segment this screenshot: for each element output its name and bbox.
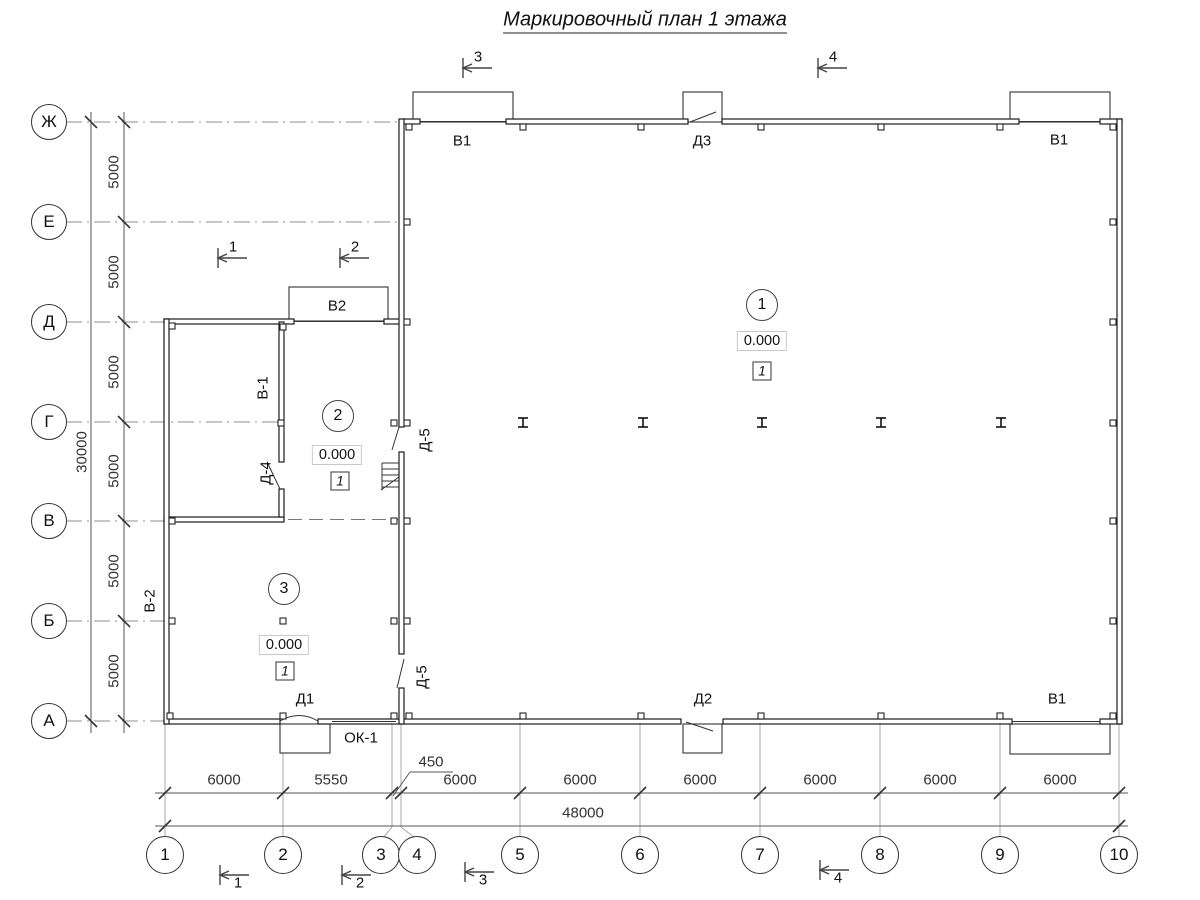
dim-text-bottom: 6000 — [443, 772, 476, 789]
wall — [164, 517, 284, 522]
canopy-outline — [413, 92, 513, 122]
gate-label-v1-bottom: В1 — [1048, 691, 1066, 708]
dim-text-bottom: 5550 — [314, 772, 347, 789]
axis-row-circle: Ж — [31, 104, 67, 140]
door-label-d2-bottom: Д2 — [694, 691, 713, 708]
wall — [279, 489, 284, 517]
wall — [399, 119, 404, 427]
column-mark — [278, 420, 284, 426]
section-mark-label: 4 — [834, 870, 842, 887]
column-mark — [280, 618, 286, 624]
column-mark — [1110, 713, 1116, 719]
column-mark — [638, 124, 644, 130]
room-number-circle: 3 — [268, 573, 300, 605]
section-mark-label: 3 — [479, 872, 487, 889]
column-mark — [997, 713, 1003, 719]
room-elevation: 0.000 — [312, 445, 362, 465]
section-mark-label: 1 — [229, 239, 237, 256]
column-mark — [404, 319, 410, 325]
section-mark-label: 2 — [356, 875, 364, 892]
column-mark — [520, 713, 526, 719]
column-mark — [169, 618, 175, 624]
gate-label-v2-wall: В-2 — [142, 589, 159, 612]
axis-col-circle: 3 — [362, 836, 400, 874]
column-mark — [391, 420, 397, 426]
axis-col-circle: 1 — [146, 836, 184, 874]
axis-row-circle: Б — [31, 603, 67, 639]
drawing-title: Маркировочный план 1 этажа — [503, 9, 787, 34]
porch-outline — [1010, 724, 1110, 754]
axis-col-circle: 7 — [741, 836, 779, 874]
axis-row-circle: В — [31, 503, 67, 539]
column-mark — [520, 124, 526, 130]
wall — [723, 719, 1012, 724]
section-mark-label: 1 — [234, 875, 242, 892]
room-number-circle: 1 — [746, 289, 778, 321]
column-mark — [406, 713, 412, 719]
axis-row-circle: Д — [31, 304, 67, 340]
wall — [722, 119, 1019, 124]
porch-outline — [683, 724, 722, 753]
column-mark — [280, 324, 286, 330]
dim-text-bottom: 6000 — [803, 772, 836, 789]
dim-text-left: 5000 — [106, 155, 123, 188]
door-label-d5-upper: Д-5 — [417, 428, 434, 452]
column-mark — [404, 518, 410, 524]
dim-text-left-total: 30000 — [74, 431, 91, 473]
dim-text-left: 5000 — [106, 454, 123, 487]
porch-outline — [280, 724, 330, 753]
wall — [399, 688, 404, 724]
plan-linework — [0, 0, 1200, 900]
floor-plan: Маркировочный план 1 этажа В1 Д3 В1 В2 В… — [0, 0, 1200, 900]
gate-label-v1-wall: В-1 — [255, 376, 272, 399]
wall — [164, 719, 280, 724]
door-label-d4: Д-4 — [258, 461, 275, 485]
column-mark — [997, 124, 1003, 130]
door-label-d1: Д1 — [296, 691, 315, 708]
column-mark — [1110, 518, 1116, 524]
axis-col-circle: 5 — [501, 836, 539, 874]
gate-label-v2-canopy: В2 — [328, 298, 346, 315]
dim-text-bottom: 6000 — [923, 772, 956, 789]
column-mark — [404, 219, 410, 225]
axis-col-circle: 4 — [398, 836, 436, 874]
column-mark — [1110, 618, 1116, 624]
stair-cut-line — [381, 477, 399, 490]
section-mark-label: 3 — [474, 49, 482, 66]
dim-text-left: 5000 — [106, 255, 123, 288]
window-label-ok1: ОК-1 — [344, 730, 378, 747]
column-mark — [1110, 319, 1116, 325]
section-mark-label: 2 — [351, 239, 359, 256]
column-mark — [638, 713, 644, 719]
dim-text-left: 5000 — [106, 654, 123, 687]
column-mark — [391, 713, 397, 719]
wall — [399, 452, 404, 654]
column-mark — [758, 124, 764, 130]
axis-col-circle: 10 — [1100, 836, 1138, 874]
wall — [402, 119, 420, 124]
column-mark — [758, 713, 764, 719]
gate-label-v1-top-right: В1 — [1050, 132, 1068, 149]
column-mark — [1110, 124, 1116, 130]
column-mark — [404, 420, 410, 426]
wall — [279, 322, 284, 462]
column-mark — [878, 124, 884, 130]
axis-col-circle: 6 — [621, 836, 659, 874]
column-mark — [391, 618, 397, 624]
dim-text-left: 5000 — [106, 554, 123, 587]
dim-text-offset: 450 — [418, 754, 443, 771]
column-mark — [169, 518, 175, 524]
column-mark — [404, 618, 410, 624]
section-mark-label: 4 — [829, 49, 837, 66]
door-label-d5-lower: Д-5 — [414, 665, 431, 689]
column-mark — [1110, 420, 1116, 426]
dim-text-bottom: 6000 — [683, 772, 716, 789]
wall — [164, 319, 169, 724]
column-mark — [280, 713, 286, 719]
column-mark — [406, 124, 412, 130]
room-elevation: 0.000 — [259, 635, 309, 655]
gate-label-v1-top-left: В1 — [453, 133, 471, 150]
axis-row-circle: А — [31, 703, 67, 739]
floor-type-mark: 1 — [331, 472, 350, 491]
column-mark — [1110, 219, 1116, 225]
floor-type-mark: 1 — [276, 662, 295, 681]
axis-col-circle: 8 — [861, 836, 899, 874]
canopy-outline — [1010, 92, 1110, 122]
dim-text-bottom: 6000 — [563, 772, 596, 789]
door-label-d3-top: Д3 — [693, 133, 712, 150]
wall — [164, 319, 294, 324]
axis-row-circle: Е — [31, 204, 67, 240]
room-elevation: 0.000 — [737, 331, 787, 351]
column-mark — [391, 518, 397, 524]
door-swing-line — [392, 427, 399, 450]
door-swing-line — [397, 659, 404, 688]
wall — [1117, 119, 1122, 724]
room-number-circle: 2 — [322, 400, 354, 432]
column-mark — [167, 713, 173, 719]
dim-text-bottom-total: 48000 — [562, 805, 604, 822]
floor-type-mark: 1 — [753, 362, 772, 381]
axis-col-circle: 2 — [264, 836, 302, 874]
column-mark — [878, 713, 884, 719]
axis-row-circle: Г — [31, 404, 67, 440]
axis-col-circle: 9 — [981, 836, 1019, 874]
column-mark — [169, 323, 175, 329]
dim-text-left: 5000 — [106, 355, 123, 388]
dim-text-bottom: 6000 — [1043, 772, 1076, 789]
wall — [506, 119, 688, 124]
dim-text-bottom: 6000 — [207, 772, 240, 789]
